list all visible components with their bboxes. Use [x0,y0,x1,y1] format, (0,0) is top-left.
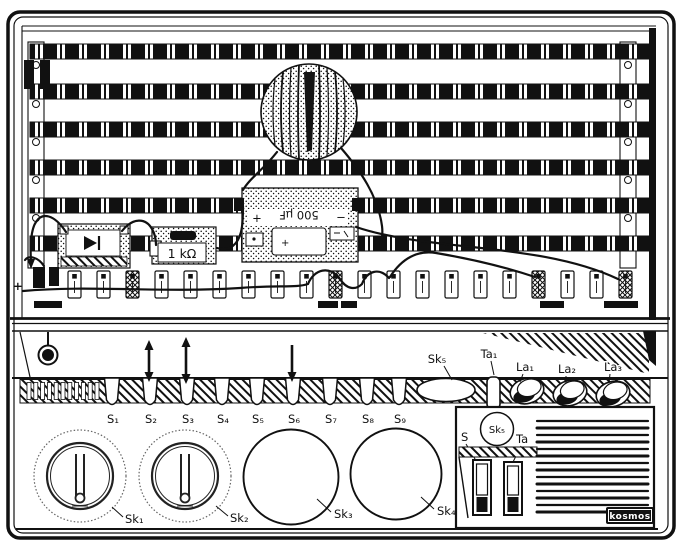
coil-component [261,64,357,160]
lamp-la2-label: La₂ [558,362,576,376]
switch-label-s1: S₁ [107,412,119,426]
vent-slot [88,383,92,400]
switch-label-s3: S₃ [182,412,194,426]
knob-sk1-label: Sk₁ [125,512,144,526]
strip-hole [33,139,40,146]
vent-slot [68,383,72,400]
terminal-contact[interactable] [97,271,110,298]
switch-label-s9: S₉ [394,412,406,426]
speaker-subpanel: Sk₅ S Ta kosmos [456,407,654,528]
contact-strip-row-4 [30,160,649,175]
vent-slot [61,383,65,400]
pushbutton-ta1-label: Ta₁ [480,347,498,361]
switch-label-s6: S₆ [288,412,300,426]
lamp-la1-label: La₁ [516,360,534,374]
resistor-block: 1 kΩ [150,227,216,264]
subpanel-sk5-label: Sk₅ [489,425,505,436]
strip-hole [625,215,632,222]
slide-switch-ta[interactable] [504,462,522,515]
strip-hole [33,177,40,184]
strip-hole [625,62,632,69]
terminal-black[interactable] [33,267,45,288]
toggle-switch-s3[interactable] [180,378,195,405]
terminal-contact[interactable] [416,271,429,298]
strip-hole [625,101,632,108]
terminal-marker [34,301,62,308]
terminal-contact[interactable] [532,271,545,298]
case-right-shadow [649,28,656,320]
vent-slots [27,383,99,400]
switch-label-s8: S₈ [362,412,374,426]
switch-label-s5: S₅ [252,412,264,426]
strip-hole [33,101,40,108]
thumbwheel-sk5[interactable] [417,379,475,402]
kosmos-logo: kosmos [606,507,654,524]
terminal-contact[interactable] [590,271,603,298]
capacitor-plus-label: + [252,211,262,225]
capacitor-block: + − 500 µF + [234,188,362,262]
vent-slot [95,383,99,400]
strip-hole [625,177,632,184]
terminal-black[interactable] [49,267,59,286]
toggle-switch-s5[interactable] [250,378,265,405]
capacitor-value-label: 500 µF [279,208,319,222]
terminal-contact[interactable] [126,271,139,298]
terminal-contact[interactable] [474,271,487,298]
capacitor-minus-label: − [336,210,346,224]
battery-contact-bar [40,60,50,89]
terminal-marker [604,301,638,308]
strip-hole [625,139,632,146]
resistor-value-label: 1 kΩ [168,246,197,261]
capacitor-terminal[interactable] [352,198,362,211]
switch-label-s7: S₇ [325,412,337,426]
plus-terminal-label: + [13,279,23,293]
vent-slot [54,383,58,400]
battery-contact-bar [24,60,34,89]
knob-sk4[interactable] [351,429,442,520]
brand-label: kosmos [609,512,650,522]
terminal-contact[interactable] [68,271,81,298]
terminal-marker [318,301,338,308]
terminal-contact[interactable] [619,271,632,298]
kosmos-experiment-kit-illustration: 1 kΩ + − 500 µF + + [0,0,681,546]
toggle-switch-s7[interactable] [323,378,338,405]
toggle-switch-s9[interactable] [392,378,407,405]
terminal-contact[interactable] [445,271,458,298]
toggle-switch-s1[interactable] [105,378,120,405]
terminal-contact[interactable] [387,271,400,298]
slide-switch-s[interactable] [473,460,491,515]
terminal-contact[interactable] [184,271,197,298]
diode-block [58,224,130,268]
slide-switch-s-label: S [461,430,468,444]
switch-label-s2: S₂ [145,412,157,426]
pushbutton-ta1[interactable] [487,377,500,409]
terminal-marker [540,301,564,308]
capacitor-body-plus: + [281,238,289,249]
vent-slot [34,383,38,400]
vent-slot [41,383,45,400]
toggle-switch-s2[interactable] [143,378,158,405]
vent-slot [47,383,51,400]
slide-switch-ta-label: Ta [515,432,528,446]
terminal-contact[interactable] [155,271,168,298]
toggle-switch-s4[interactable] [215,378,230,405]
switch-label-s4: S₄ [217,412,229,426]
terminal-contact[interactable] [271,271,284,298]
vent-slot [75,383,79,400]
terminal-contact[interactable] [213,271,226,298]
knob-sk3-label: Sk₃ [334,507,353,521]
terminal-contact[interactable] [242,271,255,298]
vent-slot [81,383,85,400]
thumbwheel-sk5-label: Sk₅ [428,352,447,366]
knob-sk2-label: Sk₂ [230,511,249,525]
vent-slot [27,383,31,400]
terminal-contact[interactable] [503,271,516,298]
knob-sk3[interactable] [244,430,339,525]
terminal-contact[interactable] [561,271,574,298]
contact-strip-row-1 [30,44,649,59]
right-hole-strip [620,42,636,268]
toggle-switch-s8[interactable] [360,378,375,405]
toggle-switch-s6[interactable] [286,378,301,405]
lamp-la3-label: La₃ [604,360,622,374]
knob-sk4-label: Sk₄ [437,504,456,518]
terminal-marker [341,301,357,308]
